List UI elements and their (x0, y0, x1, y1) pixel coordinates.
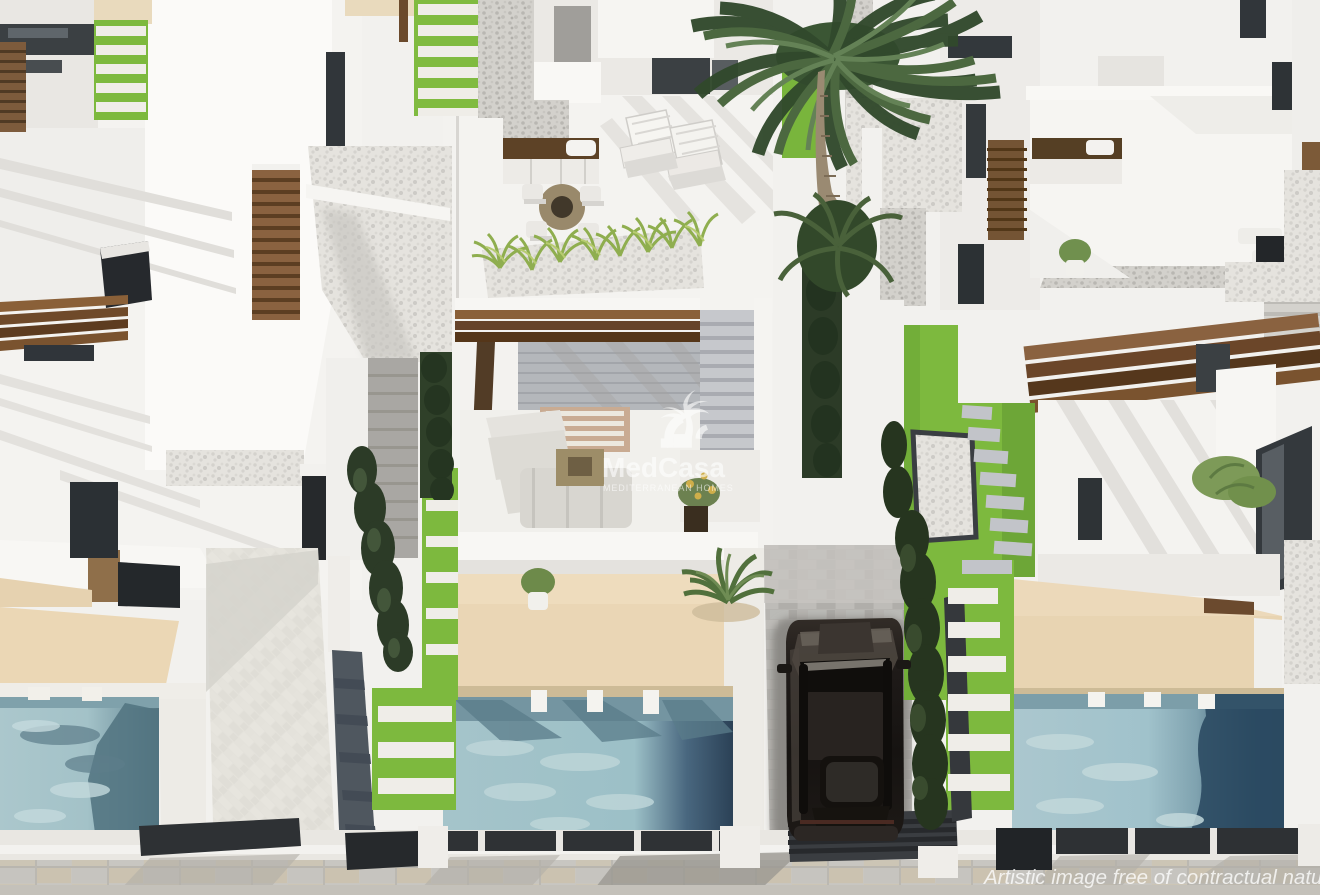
svg-text:Artistic image free of contrac: Artistic image free of contractual natur… (982, 866, 1320, 889)
svg-text:MedCasa: MedCasa (602, 452, 725, 483)
svg-text:MEDITERRANEAN HOMES: MEDITERRANEAN HOMES (603, 483, 734, 493)
